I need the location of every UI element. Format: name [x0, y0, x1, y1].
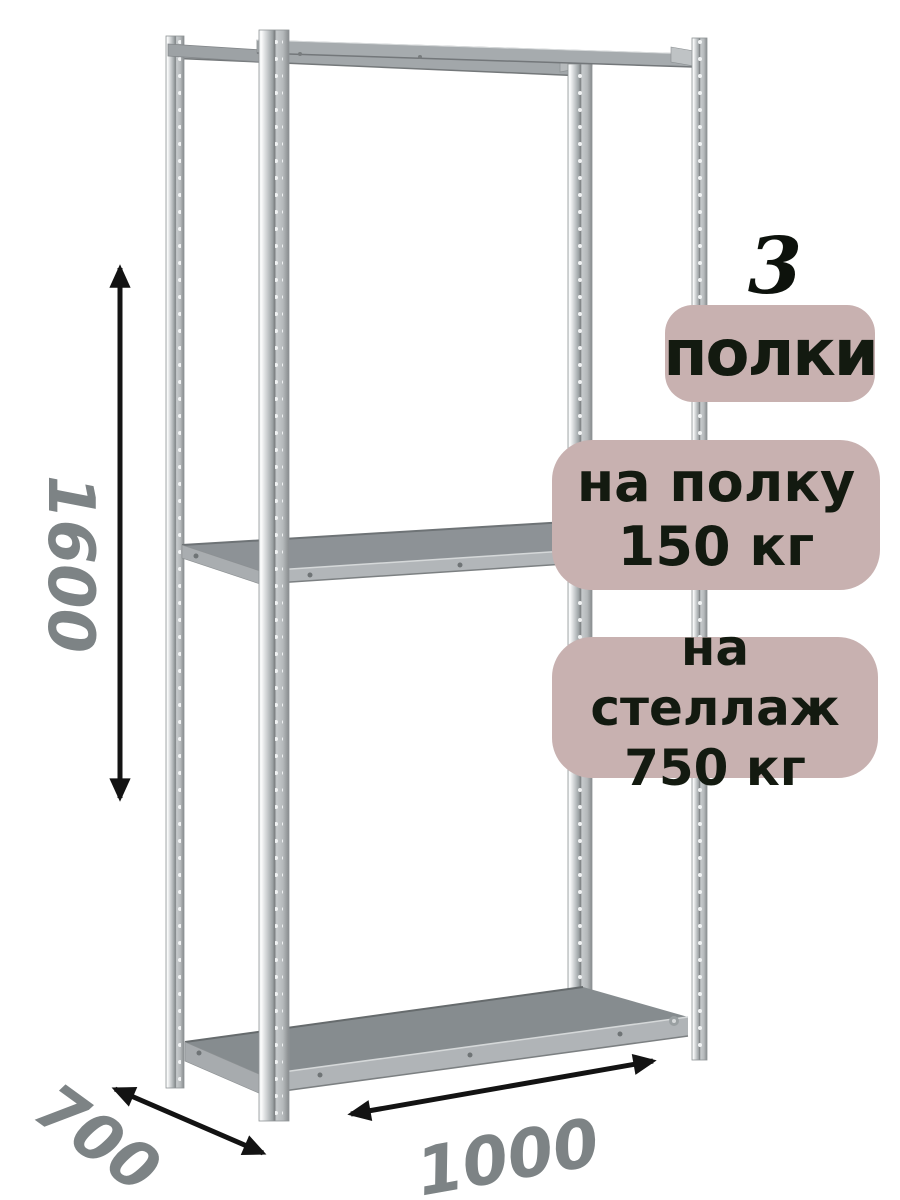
shelf-load-line1: на полку: [577, 451, 855, 515]
rack-load-badge: на стеллаж 750 кг: [552, 637, 878, 778]
rack-load-line2: 750 кг: [624, 738, 806, 798]
shelf-count-badge: полки: [665, 305, 875, 402]
shelf-load-badge: на полку 150 кг: [552, 440, 880, 590]
shelf-load-line2: 150 кг: [618, 515, 814, 579]
shelf-count-number: 3: [715, 222, 835, 312]
shelf-count-label: полки: [663, 322, 876, 386]
post-back-left: [166, 36, 184, 1088]
height-dimension-label: 1600: [30, 414, 110, 714]
post-front-left: [259, 30, 289, 1121]
rack-load-line1: на стеллаж: [552, 618, 878, 738]
rack-diagram: [0, 0, 900, 1200]
product-image: 3 полки на полку 150 кг на стеллаж 750 к…: [0, 0, 900, 1200]
